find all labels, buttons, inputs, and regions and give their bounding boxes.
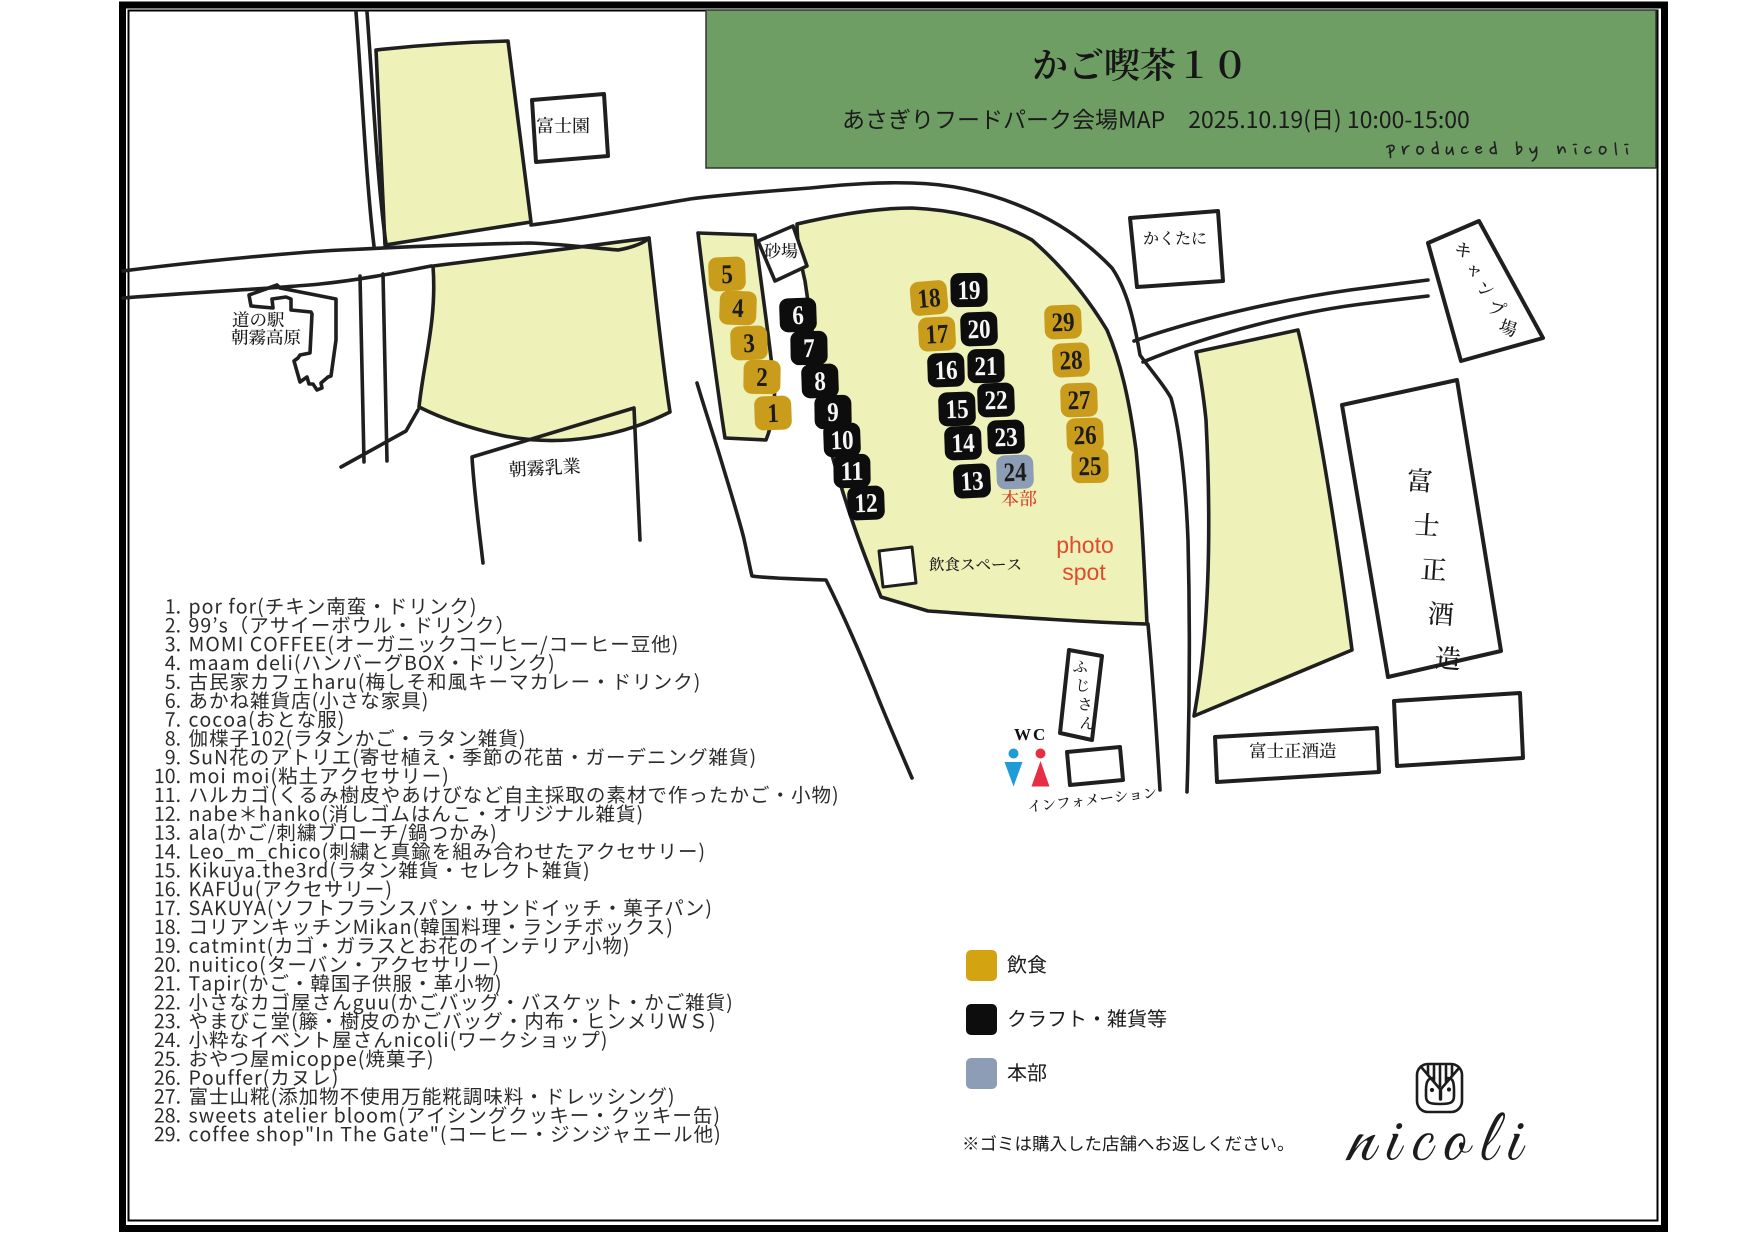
svg-text:16: 16	[934, 355, 958, 386]
svg-text:2: 2	[756, 362, 768, 392]
svg-text:14: 14	[951, 428, 975, 459]
svg-text:spot: spot	[1062, 559, 1106, 585]
svg-text:26: 26	[1073, 420, 1097, 451]
svg-text:photo: photo	[1056, 532, 1114, 558]
svg-text:6: 6	[792, 300, 805, 330]
svg-text:29: 29	[1051, 307, 1075, 338]
svg-text:5: 5	[721, 259, 734, 289]
svg-text:17: 17	[925, 318, 950, 349]
svg-text:20: 20	[967, 314, 991, 345]
svg-text:22: 22	[984, 385, 1008, 416]
svg-text:8: 8	[814, 366, 827, 396]
svg-text:7: 7	[803, 333, 815, 363]
svg-text:27: 27	[1067, 385, 1091, 416]
svg-text:WC: WC	[1014, 725, 1047, 744]
svg-text:11: 11	[840, 456, 864, 486]
svg-text:3: 3	[743, 328, 756, 358]
svg-text:19: 19	[957, 275, 981, 305]
svg-text:4: 4	[732, 293, 745, 323]
svg-text:18: 18	[916, 282, 942, 314]
svg-text:15: 15	[945, 394, 969, 425]
svg-text:13: 13	[960, 465, 985, 496]
svg-text:24: 24	[1003, 457, 1027, 488]
svg-text:12: 12	[854, 488, 878, 519]
svg-text:21: 21	[974, 351, 998, 381]
svg-text:1: 1	[767, 398, 780, 428]
svg-text:25: 25	[1078, 451, 1102, 481]
svg-text:23: 23	[994, 422, 1018, 453]
svg-text:9: 9	[827, 397, 839, 427]
svg-text:28: 28	[1059, 344, 1084, 375]
svg-text:10: 10	[830, 425, 854, 456]
